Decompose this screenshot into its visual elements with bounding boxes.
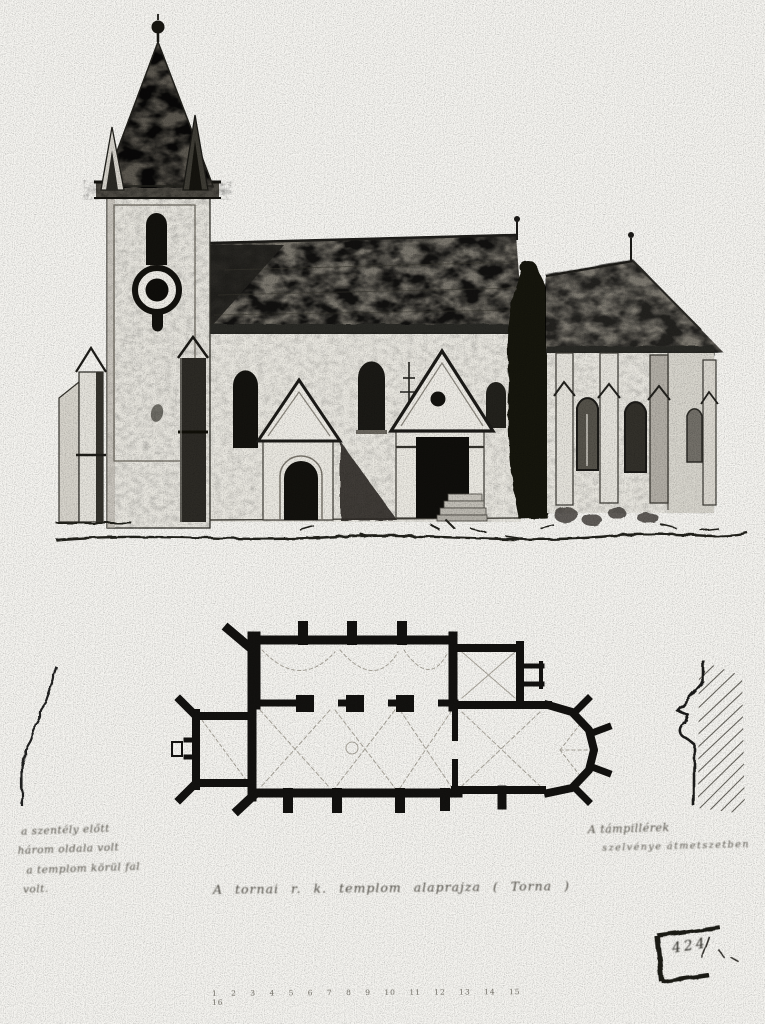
scale-bar-numbers: 1 2 3 4 5 6 7 8 9 10 11 12 13 14 15 16 <box>212 987 532 1007</box>
handwritten-note-left: a szentély előtt három oldala volt a tem… <box>21 817 184 900</box>
handwritten-note-right: A támpillérek szelvénye átmetszetben <box>588 816 759 858</box>
plan-caption: A tornai r. k. templom alaprajza ( Torna… <box>213 874 573 901</box>
scanned-architectural-drawing: a szentély előtt három oldala volt a tem… <box>0 0 765 1024</box>
